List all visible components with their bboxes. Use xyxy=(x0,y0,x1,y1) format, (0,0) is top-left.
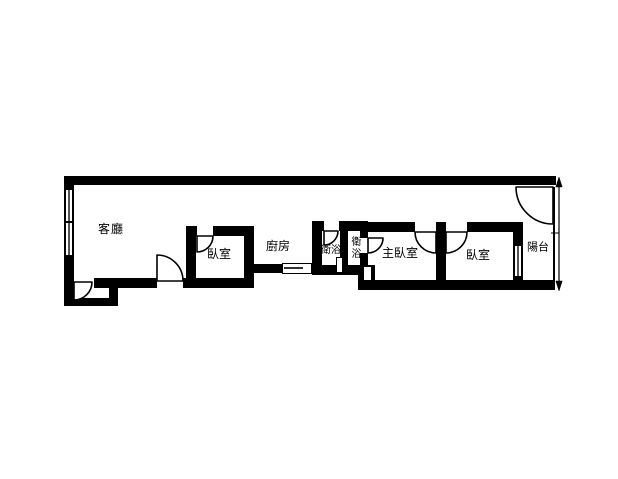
room-label-master-bedroom: 主臥室 xyxy=(382,247,418,259)
room-label-bedroom-2: 臥室 xyxy=(466,249,490,261)
floor-plan-canvas: 客廳 臥室 廚房 衛浴 衛浴 主臥室 臥室 陽台 xyxy=(0,0,618,479)
room-label-bathroom-2: 衛浴 xyxy=(349,236,359,260)
room-label-kitchen: 廚房 xyxy=(266,240,290,252)
dimension-arrow xyxy=(0,0,618,479)
room-label-living-room: 客廳 xyxy=(98,223,124,235)
room-label-bedroom-1: 臥室 xyxy=(207,248,231,260)
room-label-bathroom-1: 衛浴 xyxy=(321,246,341,256)
room-label-balcony: 陽台 xyxy=(527,242,549,253)
